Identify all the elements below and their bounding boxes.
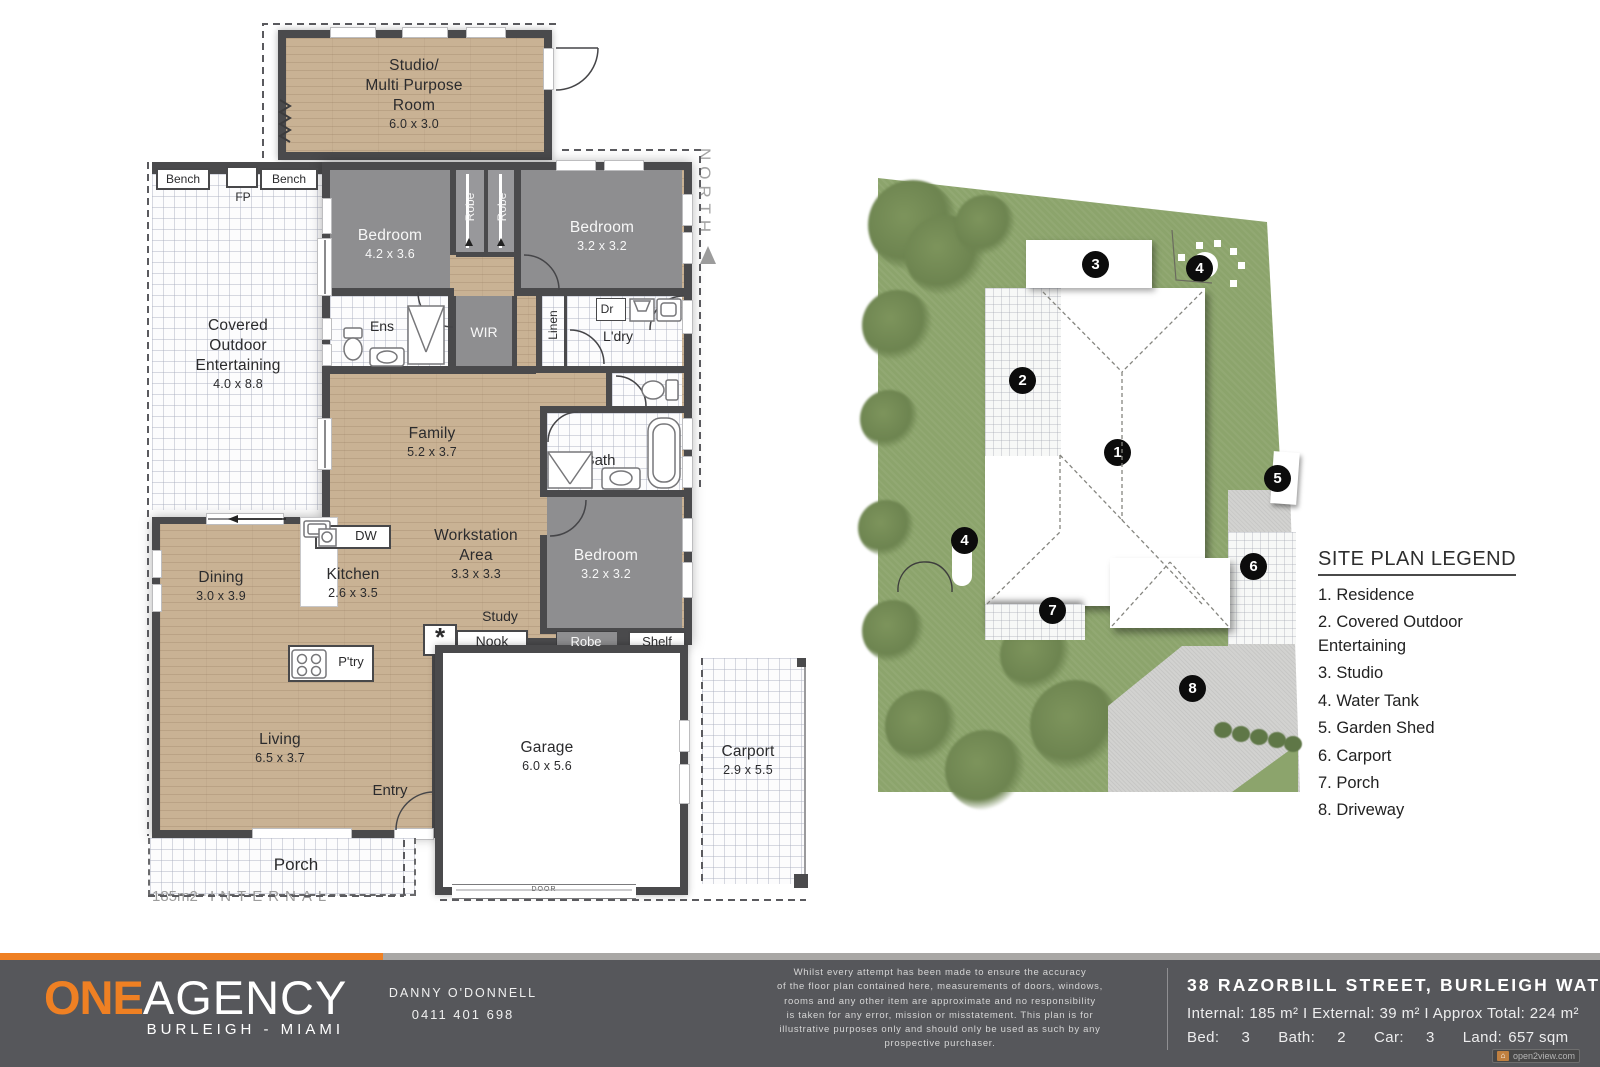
sliding-door-line — [324, 240, 326, 294]
disclaimer: Whilst every attempt has been made to en… — [752, 966, 1128, 1052]
fp-label: FP — [235, 190, 250, 204]
window — [682, 518, 693, 552]
site-marker-4-left: 4 — [951, 527, 978, 554]
carport-label: Carport 2.9 x 5.5 — [721, 742, 774, 779]
site-marker-7: 7 — [1039, 597, 1066, 624]
legend-item: 7. Porch — [1318, 772, 1533, 795]
bed-count: 3 — [1241, 1029, 1250, 1046]
footer-accent-orange — [0, 953, 383, 960]
window — [682, 562, 693, 598]
wall — [540, 535, 547, 630]
wall — [606, 371, 612, 408]
logo-agency: AGENCY — [143, 970, 348, 1025]
robe-3-label: Robe — [570, 634, 601, 649]
land-value: 657 sqm — [1508, 1029, 1568, 1046]
legend-item: 5. Garden Shed — [1318, 717, 1533, 740]
linen-label: Linen — [546, 310, 560, 339]
studio-label: Studio/ Multi Purpose Room 6.0 x 3.0 — [365, 56, 462, 133]
legend-item: 1. Residence — [1318, 584, 1533, 607]
site-garage-wing — [1110, 558, 1230, 628]
floor-plan-page: Studio/ Multi Purpose Room 6.0 x 3.0 Cov… — [0, 0, 1600, 1067]
tree — [860, 390, 918, 448]
property-stats: Bed: 3 Bath: 2 Car: 3 Land: 657 sqm — [1187, 1029, 1597, 1046]
logo-one: ONE — [44, 970, 143, 1025]
dryer-label: Dr — [601, 302, 614, 316]
wall — [512, 296, 517, 368]
window — [322, 198, 332, 234]
window — [556, 160, 596, 171]
dw-label: DW — [355, 528, 377, 543]
bath-count: 2 — [1337, 1029, 1346, 1046]
tree — [955, 195, 1015, 255]
open2view-badge: ⌂ open2view.com — [1492, 1049, 1580, 1063]
hedge-bush — [1232, 726, 1250, 742]
site-marker-4-top: 4 — [1186, 255, 1213, 282]
legend-item: 4. Water Tank — [1318, 690, 1533, 713]
site-marker-6: 6 — [1240, 553, 1267, 580]
disclaimer-line: rooms and any other item are approximate… — [752, 995, 1128, 1009]
internal-area-note: 185m2 INTERNAL — [152, 888, 332, 905]
shelf-label: Shelf — [642, 634, 672, 649]
stepping-stone — [1196, 242, 1203, 249]
living-label: Living 6.5 x 3.7 — [255, 730, 305, 767]
stepping-stone — [1214, 240, 1221, 247]
wall — [540, 490, 692, 497]
disclaimer-line: is taken for any error, mission or misst… — [752, 1009, 1128, 1023]
site-marker-5: 5 — [1264, 465, 1291, 492]
wc — [612, 373, 682, 406]
wall — [326, 366, 456, 374]
wall — [456, 252, 514, 257]
legend-title: SITE PLAN LEGEND — [1318, 548, 1516, 576]
legend-item: 2. Covered Outdoor Entertaining — [1318, 611, 1533, 658]
wir-label: WIR — [470, 324, 497, 340]
tree — [862, 600, 924, 662]
agent-block: DANNY O'DONNELL 0411 401 698 — [378, 986, 548, 1022]
window — [679, 764, 690, 804]
bath-label: Bath: — [1278, 1029, 1315, 1046]
workstation-label: Workstation Area 3.3 x 3.3 — [434, 526, 518, 583]
land-label: Land: — [1463, 1029, 1503, 1046]
internal-area-value: 185m2 — [152, 888, 198, 905]
stepping-stone — [1230, 248, 1237, 255]
wall — [448, 296, 456, 368]
car-count: 3 — [1426, 1029, 1435, 1046]
wall — [540, 406, 692, 413]
tree — [862, 290, 932, 360]
window — [322, 344, 332, 366]
sliding-door-line — [324, 420, 326, 468]
study-label: Study — [482, 608, 518, 624]
studio-door-gap — [543, 48, 554, 90]
internal-area-label: INTERNAL — [210, 888, 332, 905]
bedroom-2-label: Bedroom 3.2 x 3.2 — [570, 218, 634, 255]
family-label: Family 5.2 x 3.7 — [407, 424, 457, 461]
agent-name: DANNY O'DONNELL — [378, 986, 548, 1000]
sliding-door-line — [208, 518, 282, 520]
stepping-stone — [1238, 262, 1245, 269]
legend-item: 8. Driveway — [1318, 799, 1533, 822]
wall — [448, 366, 536, 374]
badge-house-icon: ⌂ — [1497, 1051, 1509, 1061]
laundry-label: L'dry — [603, 328, 633, 344]
tree — [945, 730, 1025, 810]
garage-label: Garage 6.0 x 5.6 — [521, 738, 574, 775]
fp-box — [226, 166, 258, 188]
property-address: 38 RAZORBILL STREET, BURLEIGH WATERS — [1187, 975, 1597, 996]
porch-label: Porch — [274, 855, 318, 875]
window — [152, 550, 162, 578]
nook-label: Nook — [476, 633, 509, 649]
pantry-label: P'try — [338, 654, 364, 669]
agency-logo: ONE AGENCY BURLEIGH - MIAMI — [44, 970, 344, 1038]
window — [682, 232, 693, 264]
bench-left-label: Bench — [166, 172, 200, 186]
badge-text: open2view.com — [1513, 1051, 1575, 1061]
tree — [885, 690, 957, 762]
property-areas: Internal: 185 m² I External: 39 m² I App… — [1187, 1005, 1597, 1022]
site-marker-3: 3 — [1082, 251, 1109, 278]
site-porch — [985, 604, 1085, 640]
hedge-bush — [1214, 722, 1232, 738]
north-label: NORTH — [694, 148, 714, 238]
agent-phone: 0411 401 698 — [378, 1007, 548, 1022]
site-carport-pad — [1228, 532, 1296, 644]
studio-window — [466, 27, 506, 38]
car-label: Car: — [1374, 1029, 1404, 1046]
studio-window — [402, 27, 448, 38]
site-marker-8: 8 — [1179, 675, 1206, 702]
kitchen-label: Kitchen 2.6 x 3.5 — [326, 565, 379, 602]
entry-label: Entry — [372, 782, 407, 799]
studio-window — [330, 27, 376, 38]
covered-outdoor-label: Covered Outdoor Entertaining 4.0 x 8.8 — [195, 316, 280, 393]
window — [682, 300, 693, 334]
wall — [536, 366, 692, 373]
tree — [1030, 680, 1120, 770]
stepping-stone — [1230, 280, 1237, 287]
disclaimer-line: illustrative purposes only and should on… — [752, 1023, 1128, 1037]
disclaimer-line: of the floor plan contained here, measur… — [752, 980, 1128, 994]
legend-item: 3. Studio — [1318, 662, 1533, 685]
ens-label: Ens — [370, 318, 394, 334]
disclaimer-line: prospective purchaser. — [752, 1037, 1128, 1051]
footer-accent-gray — [383, 953, 1600, 960]
hedge-bush — [1250, 729, 1268, 745]
site-marker-2: 2 — [1009, 367, 1036, 394]
bedroom-1-label: Bedroom 4.2 x 3.6 — [358, 226, 422, 263]
bench-right-label: Bench — [272, 172, 306, 186]
hedge-bush — [1284, 736, 1302, 752]
disclaimer-line: Whilst every attempt has been made to en… — [752, 966, 1128, 980]
site-plan-legend: SITE PLAN LEGEND 1. Residence 2. Covered… — [1318, 548, 1533, 823]
dining-label: Dining 3.0 x 3.9 — [196, 568, 246, 605]
window — [152, 584, 162, 612]
garage-door-label: DOOR — [532, 886, 557, 893]
window — [682, 194, 693, 226]
bath-label: Bath — [585, 452, 616, 469]
stepping-stone — [1178, 254, 1185, 261]
robe-2-label: Robe — [495, 193, 509, 222]
legend-item: 6. Carport — [1318, 745, 1533, 768]
window — [682, 418, 693, 450]
asterisk-label: * — [435, 622, 445, 653]
robe-1-label: Robe — [463, 193, 477, 222]
window — [679, 720, 690, 752]
wall — [540, 406, 547, 497]
bed-label: Bed: — [1187, 1029, 1219, 1046]
carport-post — [797, 658, 806, 667]
window — [682, 456, 693, 488]
dishwasher-box — [315, 525, 391, 549]
tree — [858, 500, 914, 556]
carport-post — [794, 874, 808, 888]
footer-divider — [1167, 968, 1168, 1050]
bedroom-3-label: Bedroom 3.2 x 3.2 — [574, 546, 638, 583]
wall — [322, 288, 454, 296]
site-marker-1: 1 — [1104, 439, 1131, 466]
wall — [514, 170, 521, 288]
address-block: 38 RAZORBILL STREET, BURLEIGH WATERS Int… — [1187, 975, 1597, 1046]
window — [322, 318, 332, 340]
window — [604, 160, 644, 171]
